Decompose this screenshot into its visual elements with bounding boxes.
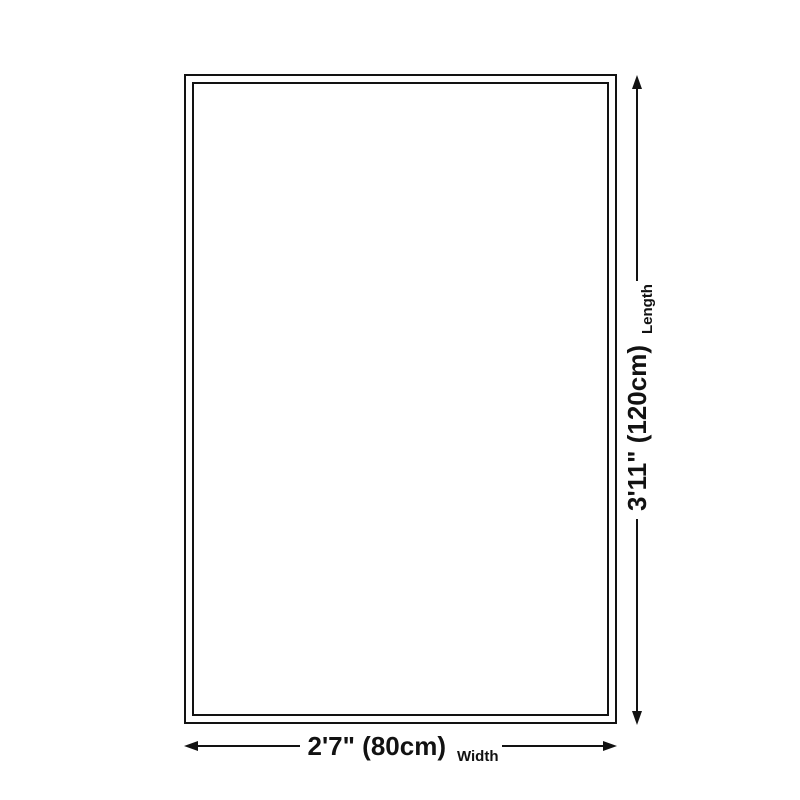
- product-outline-inner-border: [192, 82, 609, 716]
- length-dimension-line: [636, 519, 638, 711]
- arrow-right-icon: [603, 741, 617, 751]
- width-dimension-line: [502, 745, 604, 747]
- product-outline: [184, 74, 617, 724]
- width-dimension-line: [198, 745, 300, 747]
- arrow-down-icon: [632, 711, 642, 725]
- dimension-diagram: 3'11" (120cm) Length 2'7" (80cm) Width: [0, 0, 800, 800]
- length-dimension: 3'11" (120cm) Length: [620, 75, 654, 725]
- length-label: Length: [640, 281, 655, 337]
- width-label: Width: [454, 749, 502, 764]
- length-dimension-line: [636, 89, 638, 281]
- width-value: 2'7" (80cm): [300, 733, 454, 759]
- arrow-left-icon: [184, 741, 198, 751]
- length-value: 3'11" (120cm): [624, 337, 650, 519]
- arrow-up-icon: [632, 75, 642, 89]
- width-dimension: 2'7" (80cm) Width: [184, 729, 617, 763]
